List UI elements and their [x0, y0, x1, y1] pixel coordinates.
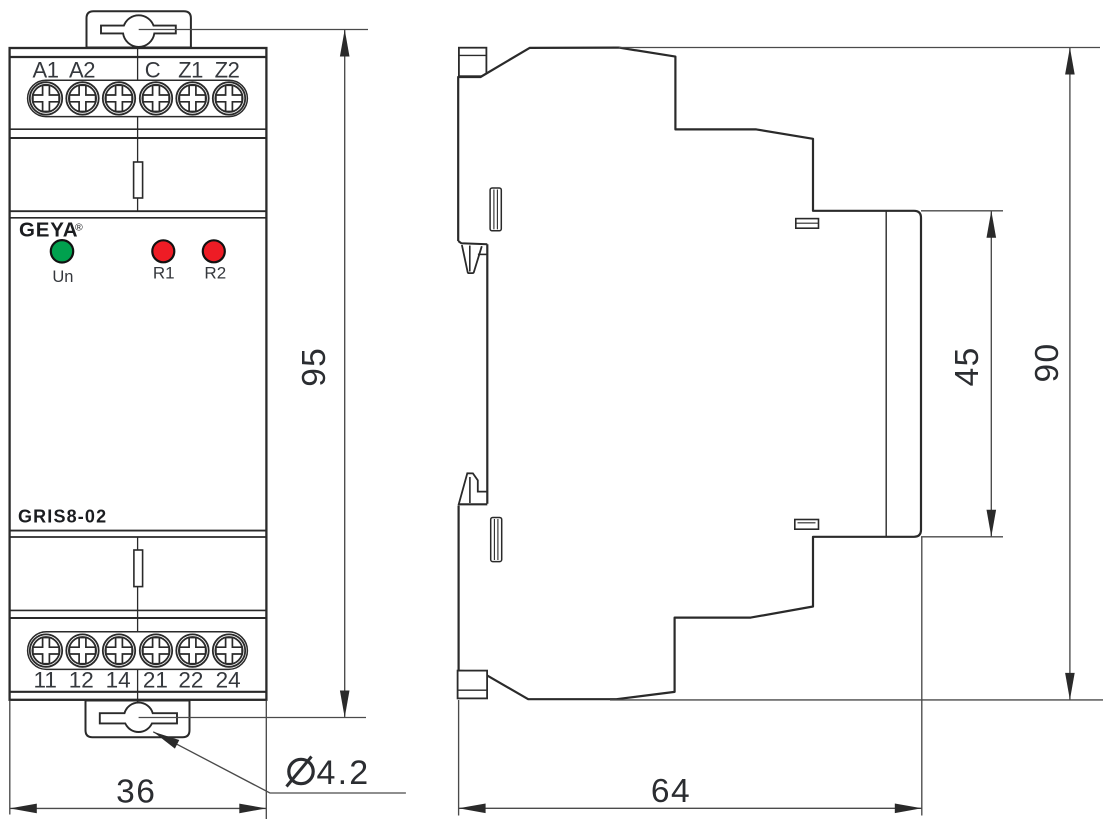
svg-text:64: 64 [651, 773, 691, 810]
svg-text:22: 22 [178, 667, 203, 692]
svg-text:Z2: Z2 [215, 58, 240, 83]
svg-text:24: 24 [216, 667, 241, 692]
svg-text:45: 45 [949, 346, 986, 386]
svg-text:11: 11 [34, 667, 57, 692]
svg-text:A1: A1 [33, 58, 59, 83]
svg-text:12: 12 [69, 667, 94, 692]
svg-text:Un: Un [52, 268, 73, 286]
svg-text:90: 90 [1029, 342, 1066, 382]
svg-text:A2: A2 [69, 58, 95, 83]
svg-text:14: 14 [106, 667, 131, 692]
svg-text:36: 36 [116, 773, 156, 810]
svg-text:Z1: Z1 [178, 58, 203, 83]
svg-text:4.2: 4.2 [317, 754, 371, 792]
svg-text:®: ® [75, 222, 83, 234]
svg-text:C: C [145, 58, 161, 83]
svg-text:21: 21 [143, 667, 168, 692]
svg-text:R2: R2 [204, 263, 226, 282]
svg-text:GRIS8-02: GRIS8-02 [18, 507, 107, 527]
svg-text:95: 95 [296, 347, 333, 387]
svg-text:GEYA: GEYA [19, 219, 78, 242]
svg-text:R1: R1 [153, 263, 175, 282]
